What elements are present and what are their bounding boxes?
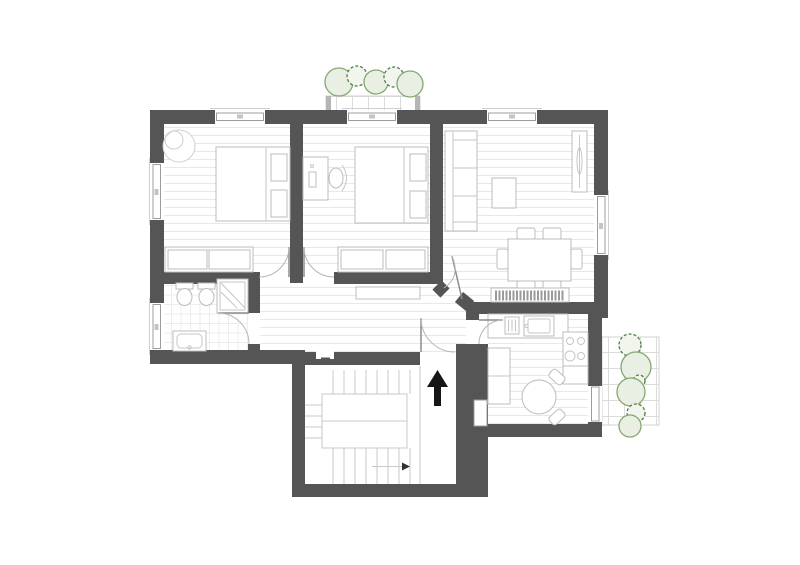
window-tick bbox=[509, 115, 515, 119]
wardrobe-2-door bbox=[386, 250, 425, 269]
wall-kitchen-bottom bbox=[476, 424, 602, 437]
kitchen-table bbox=[522, 380, 556, 414]
dining-chair bbox=[571, 249, 582, 269]
wall-bathroom-right-1 bbox=[248, 272, 260, 313]
dining-chair bbox=[517, 228, 535, 239]
wall-bed2-living-tip bbox=[437, 285, 445, 293]
wall-stairwell-top bbox=[292, 352, 420, 365]
dining-table bbox=[508, 239, 571, 281]
wall-top-2 bbox=[265, 110, 347, 124]
wall-hall-band-2 bbox=[334, 272, 430, 284]
bed-2-pillow bbox=[410, 191, 426, 218]
wall-stairwell-left bbox=[292, 352, 305, 497]
wall-bed2-living bbox=[430, 124, 443, 284]
toilet-bowl bbox=[177, 289, 192, 306]
wardrobe-2-door bbox=[341, 250, 383, 269]
planter-post-right bbox=[415, 96, 420, 112]
bed-1-pillow bbox=[271, 190, 287, 217]
bidet-bowl bbox=[199, 289, 214, 306]
planter-post-left bbox=[326, 96, 331, 112]
sofa bbox=[445, 131, 477, 231]
wall-living-kitchen bbox=[466, 302, 594, 314]
kitchen-counter-right bbox=[563, 366, 588, 384]
wall-top-3 bbox=[397, 110, 487, 124]
stove bbox=[563, 332, 588, 366]
desk-chair bbox=[329, 168, 343, 188]
plant-bush bbox=[364, 70, 388, 94]
dining-chair bbox=[543, 228, 561, 239]
floor-plan-page bbox=[0, 0, 800, 565]
wall-bedrooms-divider bbox=[290, 124, 303, 283]
coffee-table bbox=[492, 178, 516, 208]
wall-niche-tick bbox=[321, 358, 330, 363]
wall-kitchen-right-1 bbox=[588, 306, 602, 386]
wall-left-1 bbox=[150, 110, 164, 163]
shaft-niche bbox=[474, 400, 487, 426]
window-tick bbox=[599, 223, 603, 229]
wall-left-2 bbox=[150, 220, 164, 303]
window-tick bbox=[369, 115, 375, 119]
plant-bush bbox=[397, 71, 423, 97]
plant-bush bbox=[619, 415, 641, 437]
wall-bottom-left bbox=[150, 350, 305, 364]
wardrobe-1-door bbox=[168, 250, 207, 269]
desk-monitor bbox=[309, 172, 316, 187]
window-tick bbox=[155, 324, 159, 330]
entrance-arrow-shaft bbox=[434, 387, 441, 406]
dining-chair bbox=[497, 249, 508, 269]
wardrobe-1-door bbox=[209, 250, 250, 269]
wall-bathroom-right-2 bbox=[248, 344, 260, 352]
hall-console bbox=[356, 287, 420, 299]
wall-kitchen-door-stub bbox=[466, 314, 479, 320]
floor-planter bbox=[326, 96, 420, 112]
floor-plan-svg bbox=[0, 0, 800, 565]
window-tick bbox=[155, 189, 159, 195]
bed-1-pillow bbox=[271, 154, 287, 181]
plant-bush bbox=[617, 378, 645, 406]
bed-2-pillow bbox=[410, 154, 426, 181]
wall-right-1 bbox=[594, 110, 608, 195]
window-tick bbox=[237, 115, 243, 119]
balcony-door-frame bbox=[592, 387, 600, 421]
